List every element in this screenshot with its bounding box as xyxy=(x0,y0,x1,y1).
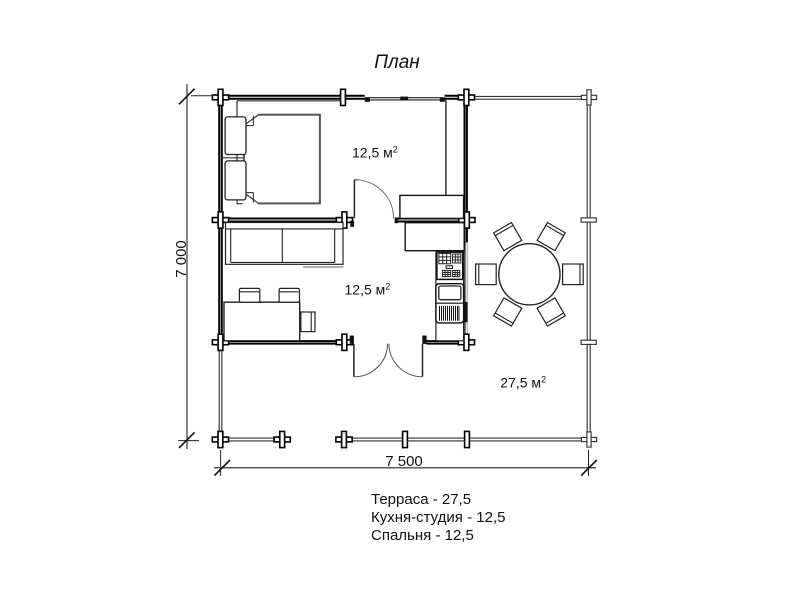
svg-text:7 000: 7 000 xyxy=(173,240,190,278)
svg-text:12,5 м2: 12,5 м2 xyxy=(345,282,391,298)
svg-text:Терраса - 27,5: Терраса - 27,5 xyxy=(371,491,471,508)
svg-text:Кухня-студия - 12,5: Кухня-студия - 12,5 xyxy=(371,509,505,526)
svg-text:12,5 м2: 12,5 м2 xyxy=(352,145,398,161)
svg-text:Спальня - 12,5: Спальня - 12,5 xyxy=(371,527,474,544)
svg-text:7 500: 7 500 xyxy=(385,453,423,470)
svg-text:27,5 м2: 27,5 м2 xyxy=(500,375,546,391)
svg-text:План: План xyxy=(374,52,420,73)
